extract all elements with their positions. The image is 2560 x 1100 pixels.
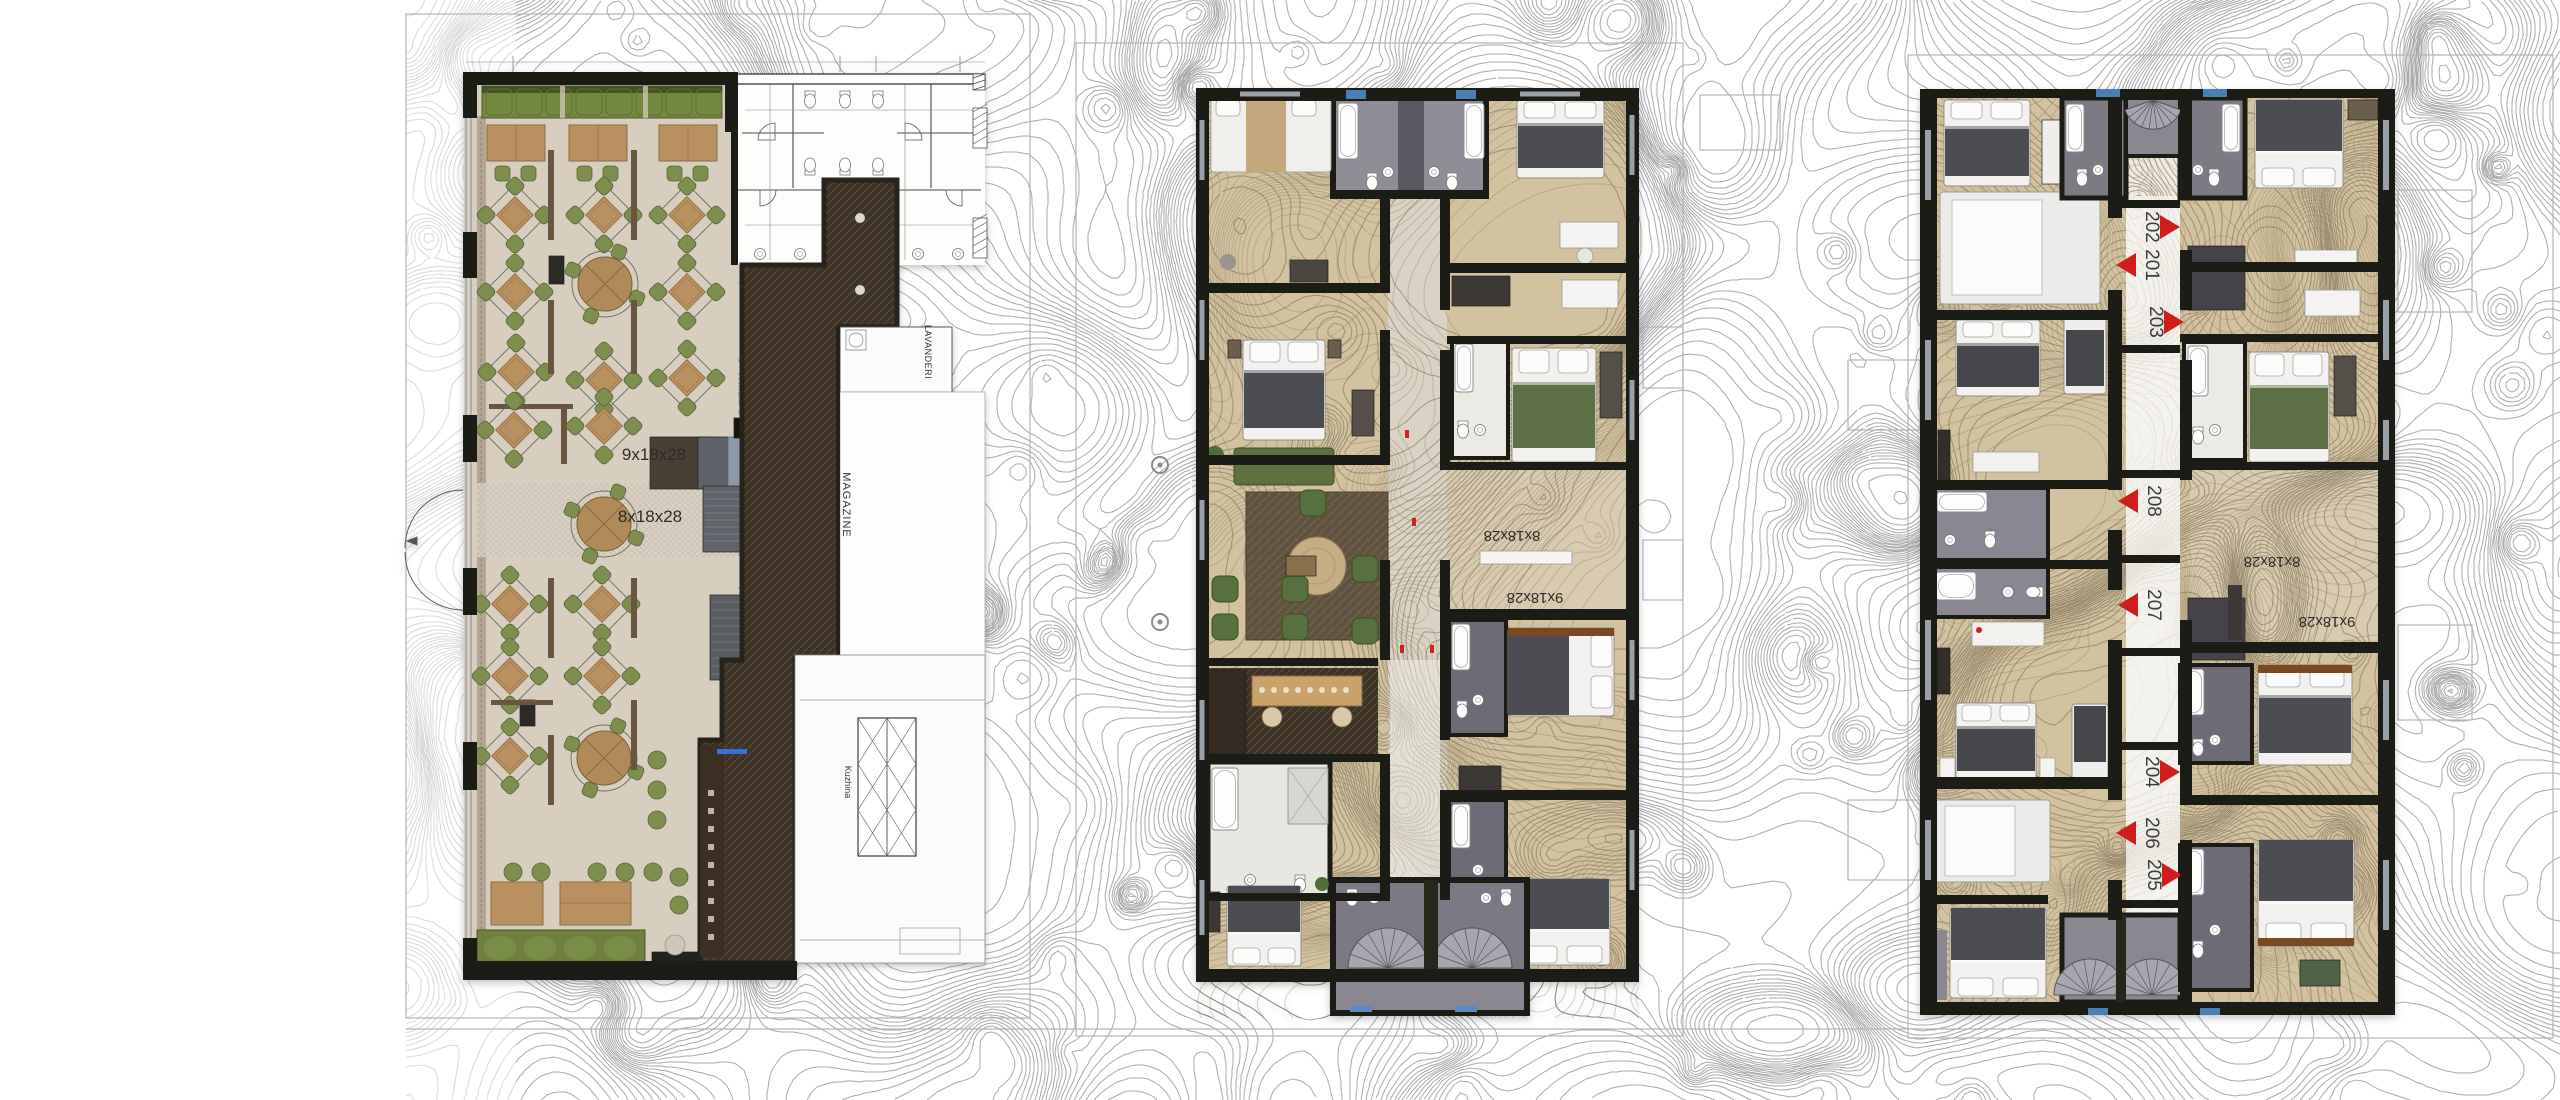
svg-text:207: 207: [2143, 589, 2164, 621]
svg-text:8x18x28: 8x18x28: [1484, 527, 1541, 544]
svg-text:203: 203: [2145, 306, 2166, 338]
svg-text:8x18x28: 8x18x28: [2244, 553, 2301, 570]
svg-text:9x18x28: 9x18x28: [2299, 613, 2356, 630]
svg-text:202: 202: [2141, 211, 2162, 243]
svg-text:8x18x28: 8x18x28: [618, 507, 682, 526]
svg-text:9x18x28: 9x18x28: [1507, 589, 1564, 606]
svg-text:LAVANDERI: LAVANDERI: [923, 325, 933, 379]
svg-text:201: 201: [2141, 249, 2162, 281]
svg-text:MAGAZINE: MAGAZINE: [840, 472, 852, 537]
svg-text:204: 204: [2141, 756, 2162, 788]
svg-text:Kuzhina: Kuzhina: [843, 766, 853, 799]
svg-text:206: 206: [2141, 817, 2162, 849]
svg-text:9x18x28: 9x18x28: [622, 445, 686, 464]
svg-text:205: 205: [2143, 859, 2164, 891]
svg-text:208: 208: [2143, 485, 2164, 517]
